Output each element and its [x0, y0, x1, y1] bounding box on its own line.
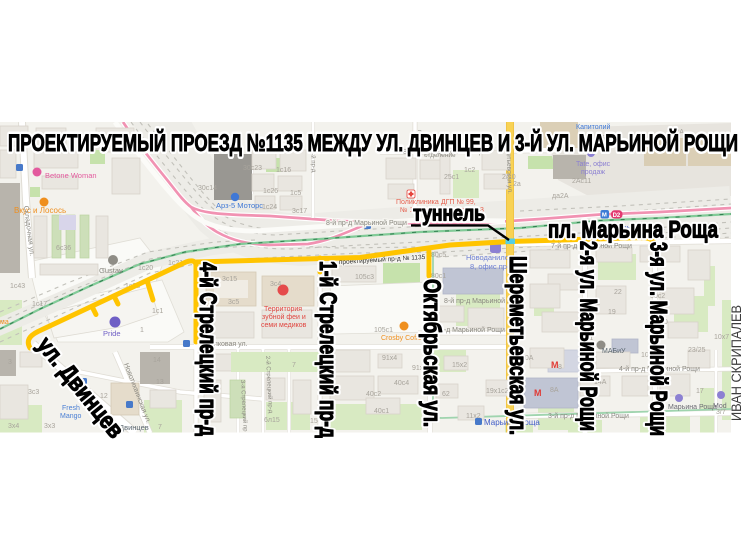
- svg-text:11х2: 11х2: [466, 413, 481, 420]
- svg-text:3х4: 3х4: [8, 423, 19, 430]
- svg-text:1с1: 1с1: [152, 308, 163, 315]
- svg-text:1с5: 1с5: [290, 190, 301, 197]
- svg-text:Вкус и Лосось: Вкус и Лосось: [14, 206, 66, 215]
- svg-text:1с2: 1с2: [464, 167, 475, 174]
- svg-text:13: 13: [156, 379, 164, 386]
- svg-text:2а: 2а: [513, 181, 521, 188]
- svg-text:105с1: 105с1: [374, 327, 393, 334]
- svg-text:зубной феи и: зубной феи и: [262, 313, 306, 321]
- svg-text:да2А: да2А: [552, 193, 569, 200]
- svg-text:Mango: Mango: [60, 413, 82, 420]
- svg-text:Pride: Pride: [103, 329, 121, 338]
- svg-text:23/25: 23/25: [688, 347, 706, 354]
- svg-text:40с2: 40с2: [366, 391, 381, 398]
- svg-text:91х4: 91х4: [382, 355, 397, 362]
- svg-text:8-й пр-д Марьиной Рощи: 8-й пр-д Марьиной Рощи: [326, 219, 407, 227]
- svg-text:17: 17: [696, 388, 704, 395]
- svg-text:105с3: 105с3: [355, 274, 374, 281]
- svg-text:15х2: 15х2: [452, 362, 467, 369]
- svg-text:3с17: 3с17: [292, 208, 307, 215]
- svg-text:МАБиУ: МАБиУ: [602, 348, 626, 355]
- svg-text:1с16: 1с16: [276, 167, 291, 174]
- svg-text:ПРОЕКТИРУЕМЫЙ ПРОЕЗД №1135 МЕЖ: ПРОЕКТИРУЕМЫЙ ПРОЕЗД №1135 МЕЖДУ УЛ. ДВИ…: [8, 129, 738, 157]
- svg-text:1с26: 1с26: [263, 188, 278, 195]
- svg-text:3с3: 3с3: [28, 389, 39, 396]
- svg-text:2/10: 2/10: [502, 174, 516, 181]
- svg-text:3с5: 3с5: [228, 299, 239, 306]
- svg-text:ма: ма: [0, 319, 9, 326]
- svg-text:25с1: 25с1: [444, 174, 459, 181]
- svg-text:М: М: [534, 388, 542, 398]
- svg-text:семи медиков: семи медиков: [261, 322, 307, 329]
- svg-text:40с1: 40с1: [374, 408, 389, 415]
- svg-text:10х7: 10х7: [714, 334, 729, 341]
- svg-text:1с24: 1с24: [262, 204, 277, 211]
- svg-text:1с17: 1с17: [32, 301, 47, 308]
- svg-text:40с4: 40с4: [394, 380, 409, 387]
- svg-text:1: 1: [140, 327, 144, 334]
- svg-text:14: 14: [153, 357, 161, 364]
- svg-text:80с5: 80с5: [431, 252, 446, 259]
- svg-text:7: 7: [158, 424, 162, 431]
- svg-text:30с23: 30с23: [243, 165, 262, 172]
- svg-text:6с36: 6с36: [56, 245, 71, 252]
- svg-text:Марьина Роща: Марьина Роща: [668, 404, 717, 411]
- svg-text:Арз-5 Моторс: Арз-5 Моторс: [216, 201, 263, 210]
- svg-text:Betone Woman: Betone Woman: [45, 171, 97, 180]
- svg-text:Fresh: Fresh: [62, 405, 80, 412]
- svg-text:3х3: 3х3: [44, 423, 55, 430]
- svg-text:ИВАН СКРИПАЛЕВ: ИВАН СКРИПАЛЕВ: [729, 305, 744, 421]
- svg-text:19: 19: [608, 309, 616, 316]
- svg-text:2Ас11: 2Ас11: [572, 178, 591, 185]
- svg-text:Tate, офис: Tate, офис: [576, 161, 611, 168]
- svg-text:Территория: Территория: [264, 306, 302, 313]
- svg-text:3/7: 3/7: [716, 409, 726, 416]
- svg-text:6л15: 6л15: [264, 417, 280, 424]
- svg-text:3: 3: [8, 359, 12, 366]
- svg-text:8А: 8А: [550, 387, 559, 394]
- svg-text:3с4: 3с4: [270, 281, 281, 288]
- svg-text:1с43: 1с43: [10, 283, 25, 290]
- svg-text:30с14: 30с14: [198, 185, 217, 192]
- svg-text:22: 22: [614, 289, 622, 296]
- svg-text:продаж: продаж: [581, 169, 605, 176]
- svg-text:7: 7: [292, 362, 296, 369]
- svg-text:1с20: 1с20: [138, 265, 153, 272]
- svg-text:8: 8: [558, 364, 562, 371]
- svg-text:3с15: 3с15: [222, 276, 237, 283]
- svg-text:Gustav: Gustav: [99, 266, 123, 275]
